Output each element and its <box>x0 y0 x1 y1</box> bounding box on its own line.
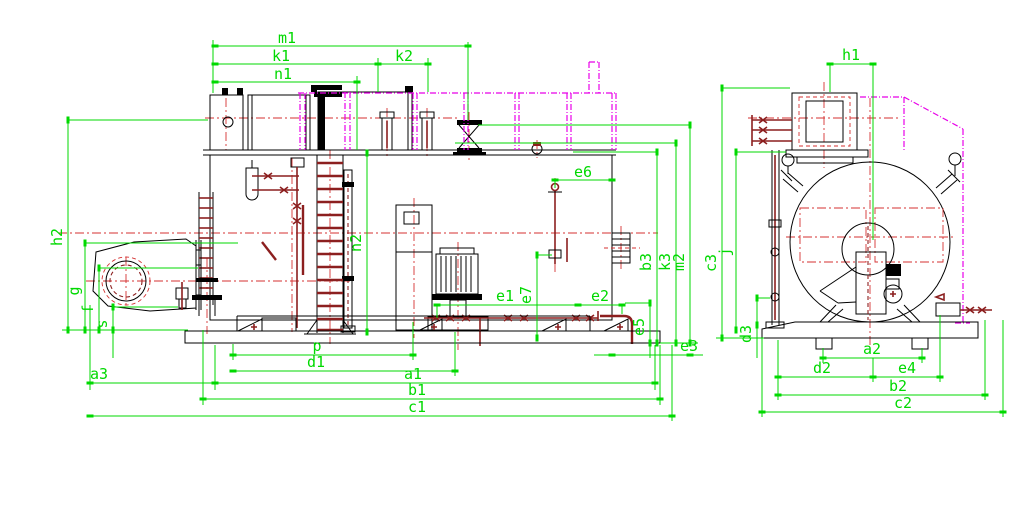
dim-label-d1: d1 <box>307 353 325 371</box>
dim-label-e6: e6 <box>574 163 592 181</box>
drum-fittings <box>380 112 434 150</box>
dim-label-e5: e5 <box>630 318 648 336</box>
centerlines-side <box>58 98 658 350</box>
dim-label-a3: a3 <box>90 365 108 383</box>
boiler-ga-drawing: m1 k1 k2 n1 h2 g f s n2 e6 e7 e1 <box>0 0 1011 520</box>
dim-label-k1: k1 <box>272 47 290 65</box>
dim-label-b3: b3 <box>637 253 655 271</box>
dim-label-j: j <box>716 247 734 256</box>
dim-label-h1: h1 <box>842 46 860 64</box>
end-view <box>748 82 992 352</box>
steam-valve <box>314 85 342 97</box>
dim-label-f: f <box>79 304 97 313</box>
dim-label-e2: e2 <box>591 287 609 305</box>
dim-label-m2: m2 <box>670 253 688 271</box>
burner-front <box>820 223 902 320</box>
water-column <box>752 115 792 328</box>
dim-label-e4: e4 <box>898 359 916 377</box>
dim-label-e1: e1 <box>496 287 514 305</box>
damper-rod <box>548 184 567 265</box>
end-blowdown <box>936 294 992 316</box>
shoulder-valves <box>781 153 961 194</box>
dim-label-b2: b2 <box>889 377 907 395</box>
phantom-panels <box>298 62 616 150</box>
burner <box>93 239 201 311</box>
dim-label-e3: e3 <box>680 337 698 355</box>
smoke-box <box>210 95 243 150</box>
drawing-canvas: m1 k1 k2 n1 h2 g f s n2 e6 e7 e1 <box>0 0 1011 520</box>
dim-label-e7: e7 <box>517 286 535 304</box>
rear-flange <box>604 233 640 263</box>
dim-label-m1: m1 <box>278 29 296 47</box>
dim-label-h2: h2 <box>48 228 66 246</box>
dim-label-c2: c2 <box>894 394 912 412</box>
dim-label-d3: d3 <box>737 325 755 343</box>
dim-label-d2: d2 <box>813 359 831 377</box>
dim-label-b1: b1 <box>408 381 426 399</box>
flue-box <box>786 93 868 163</box>
dim-label-a2: a2 <box>863 340 881 358</box>
phantom-duct <box>860 97 970 323</box>
dim-label-k2: k2 <box>395 47 413 65</box>
dim-label-c1: c1 <box>408 398 426 416</box>
dimensions-end: h1 c3 j d3 a2 d2 e4 b2 c2 <box>702 46 1003 417</box>
dim-label-s: s <box>93 319 111 328</box>
dim-label-g: g <box>65 286 83 295</box>
dim-label-n1: n1 <box>274 65 292 83</box>
dim-label-n2: n2 <box>347 234 365 252</box>
dimensions-side: m1 k1 k2 n1 h2 g f s n2 e6 e7 e1 <box>48 29 703 421</box>
